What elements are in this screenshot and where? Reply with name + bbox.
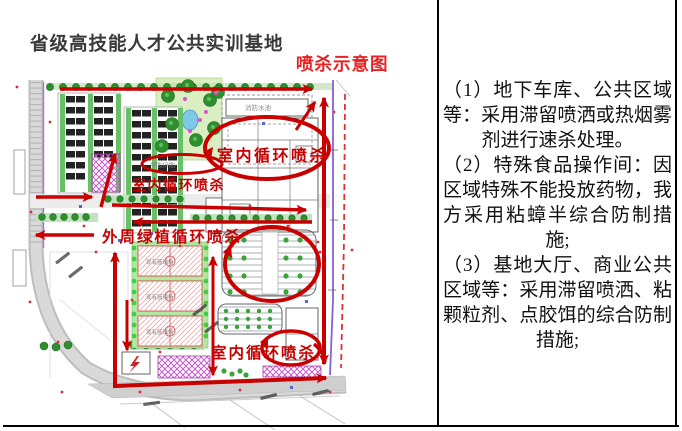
- table-divider-right: [675, 0, 677, 427]
- document-page: 省级高技能人才公共实训基地 喷杀示意图: [0, 0, 682, 431]
- site-plan-map: 消防水池 场馆(旧馆) 现有篮球场 现有篮球场 现有篮球场: [0, 0, 437, 431]
- old-hall-label: 场馆(旧馆): [150, 161, 176, 169]
- note-line: 区域等：采用滞留喷洒、粘: [443, 278, 672, 303]
- annotation-perimeter: 外周绿植循环喷杀: [102, 227, 242, 246]
- note-line: 等：采用滞留喷洒或热烟雾: [443, 103, 672, 128]
- notes-panel: （1）地下车库、公共区域 等：采用滞留喷洒或热烟雾 剂进行速杀处理。 （2）特殊…: [439, 0, 675, 425]
- fire-pool-label: 消防水池: [245, 103, 272, 112]
- note-line: 措施;: [443, 328, 672, 353]
- note-line: 方采用粘蟑半综合防制措: [443, 203, 672, 228]
- pond: [182, 110, 198, 130]
- site-boundary: [328, 80, 345, 375]
- note-line: 剂进行速杀处理。: [443, 128, 672, 153]
- note-line: （1）地下车库、公共区域: [443, 78, 672, 103]
- annotation-indoor-top: 室内循环喷杀: [217, 146, 328, 165]
- basketball-courts: 现有篮球场 现有篮球场 现有篮球场: [132, 242, 208, 348]
- note-line: （3）基地大厅、商业公共: [443, 253, 672, 278]
- annotation-indoor-bottom: 室内循环喷杀: [211, 343, 316, 362]
- court-label: 现有篮球场: [146, 328, 174, 336]
- table-bottom-rule: [3, 425, 679, 427]
- note-line: 颗粒剂、点胶饵的综合防制: [443, 303, 672, 328]
- note-line: （2）特殊食品操作间：因: [443, 153, 672, 178]
- court-label: 现有篮球场: [146, 258, 174, 266]
- annotation-indoor-center: 室内循环喷杀: [132, 177, 225, 193]
- note-line: 区域特殊不能投放药物，我: [443, 178, 672, 203]
- note-line: 施;: [443, 228, 672, 253]
- court-label: 现有篮球场: [146, 293, 174, 301]
